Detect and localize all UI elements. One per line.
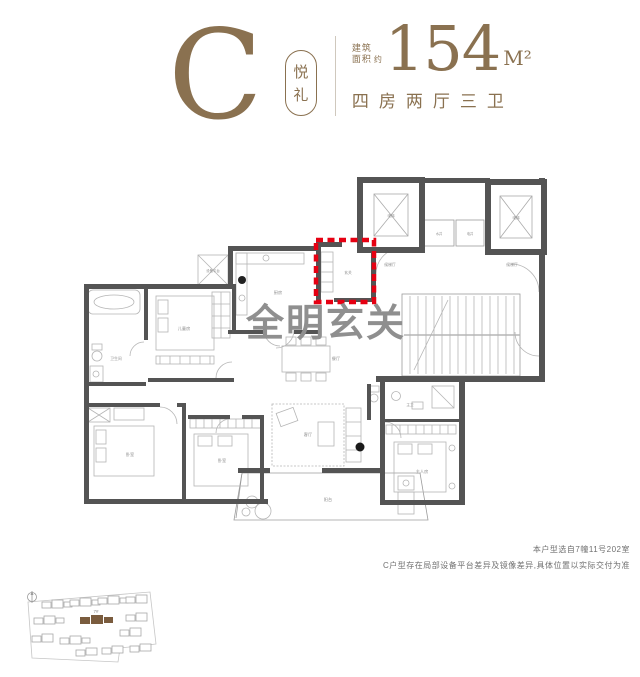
room-label-foyer: 玄关 [344,270,352,275]
room-label-living: 客厅 [304,431,312,438]
area-block: 建筑 面积 约 154 M² 四房两厅三卫 [352,24,532,112]
room-label-electric-shaft: 电井 [467,231,473,236]
room-label-elevator-right: 电梯 [512,215,520,220]
room-label-kitchen: 厨房 [274,289,282,296]
header-divider [335,36,336,116]
room-label-master-bedroom: 主人房 [416,468,429,475]
floorplan-poster: C 悦 礼 建筑 面积 约 154 M² 四房两厅三卫 [0,0,640,677]
floorplan-drawing: 设备平台 卫生间 儿童房 厨房 玄关 电梯 电梯 水井 电井 候梯厅 候梯厅 餐… [80,160,550,552]
room-label-balcony: 阳台 [324,496,332,503]
room-label-water-shaft: 水井 [436,231,442,236]
room-label-equipment-platform: 设备平台 [206,268,220,273]
layout-summary: 四房两厅三卫 [352,87,532,112]
site-plan: 7# [20,586,165,670]
type-name-char-1: 悦 [293,61,308,82]
area-approx: 约 [374,54,382,65]
room-label-master-bath: 主卫 [406,402,414,407]
room-label-elevator-left: 电梯 [387,213,395,218]
room-label-dining: 餐厅 [332,355,340,362]
area-prefix-line2: 面积 [352,54,372,65]
room-outlines [234,220,520,520]
room-label-elevator-hall-right: 候梯厅 [506,262,518,267]
room-label-bedroom-left: 卧室 [126,451,134,458]
plan-header: C 悦 礼 建筑 面积 约 154 M² 四房两厅三卫 [168,24,532,128]
area-unit: M² [503,46,532,70]
note-source: 本户型选自7幢11号202室 [383,542,630,558]
area-value: 154 [385,24,500,74]
highlighted-building [80,615,113,624]
area-prefix: 建筑 面积 [352,43,372,65]
foyer-callout-text: 全明玄关 [245,302,406,345]
site-buildings [32,595,151,656]
room-label-bedroom-mid: 卧室 [218,457,226,464]
room-label-kids-room: 儿童房 [178,325,191,332]
disclaimer-notes: 本户型选自7幢11号202室 C户型存在局部设备平台差异及镜像差异,具体位置以实… [383,542,630,574]
room-label-elevator-hall-left: 候梯厅 [384,262,396,267]
unit-type-letter: C [168,24,263,128]
note-disclaimer: C户型存在局部设备平台差异及镜像差异,具体位置以实际交付为准 [383,558,630,574]
area-prefix-line1: 建筑 [352,43,372,54]
room-label-bath: 卫生间 [110,356,122,361]
type-name-char-2: 礼 [293,84,308,105]
highlighted-building-label: 7# [93,609,99,614]
type-name-badge: 悦 礼 [285,50,317,116]
